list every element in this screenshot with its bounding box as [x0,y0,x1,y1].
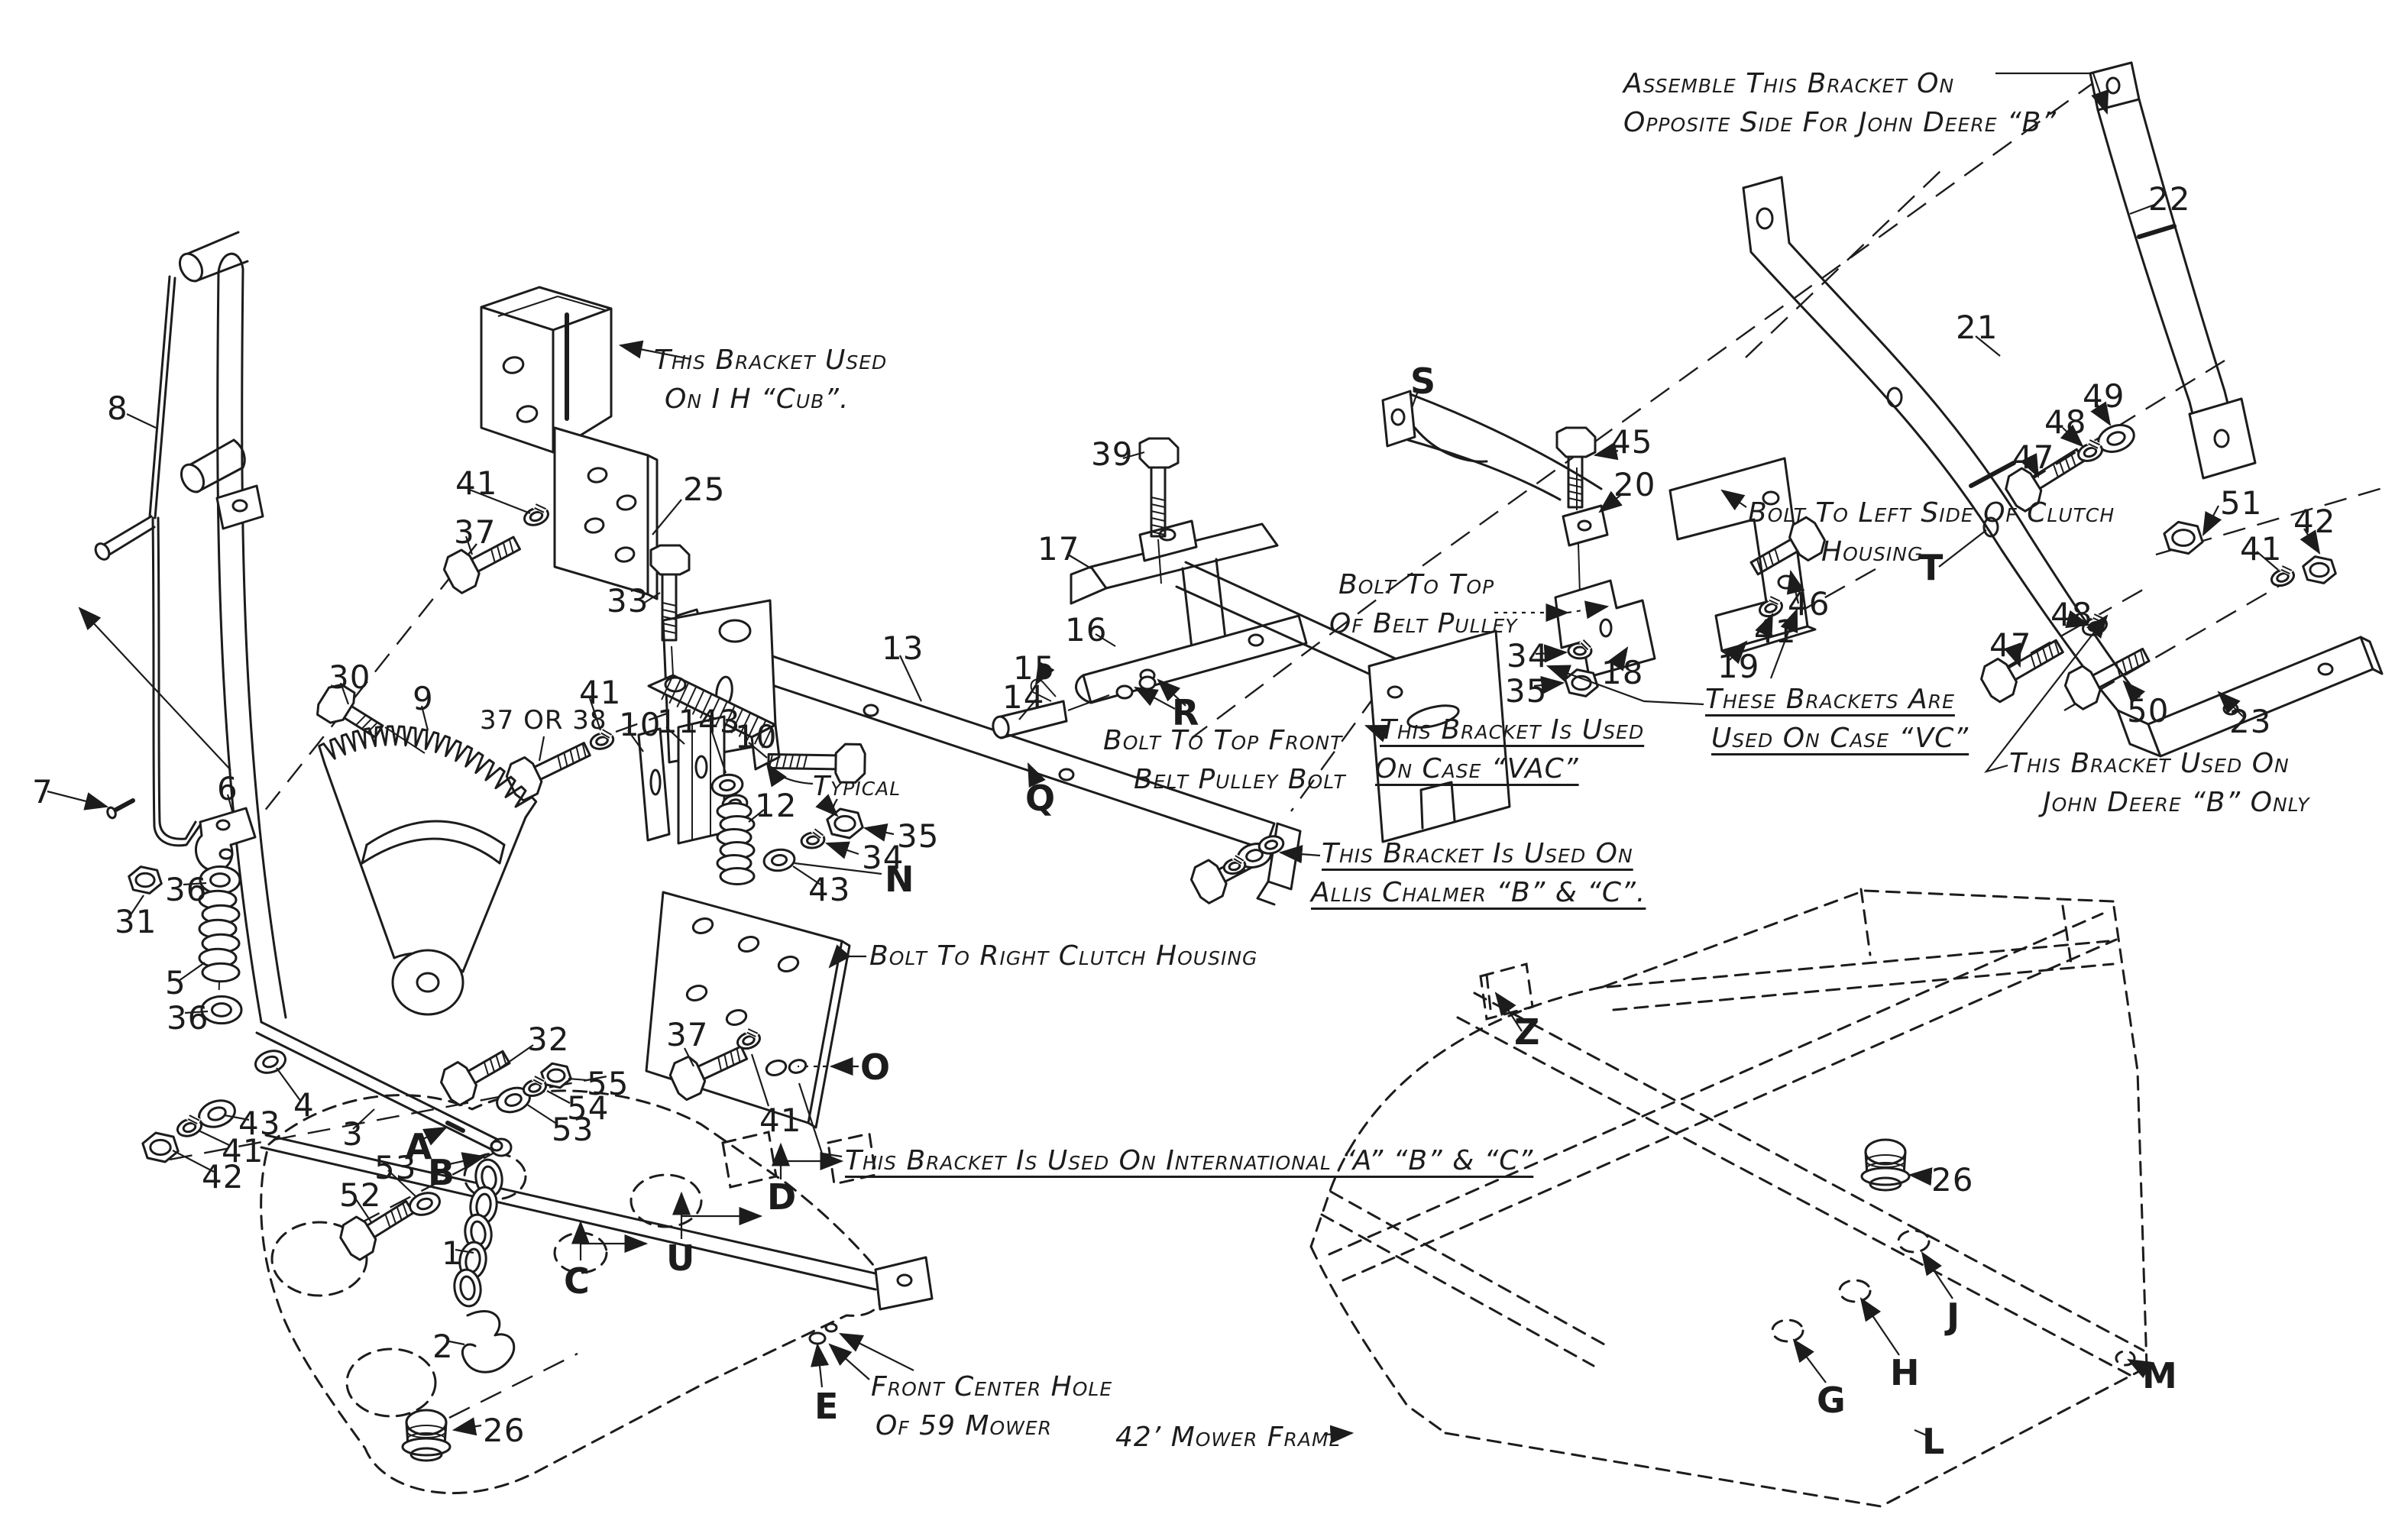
ref-letter-B: B [428,1155,455,1190]
part-label-32: 32 [527,1024,569,1056]
note-case-vc: These Brackets AreUsed On Case “VC” [1705,680,1969,758]
note-line: On I H “Cub”. [665,380,887,419]
part-label-36: 36 [167,1002,209,1034]
ref-letter-S: S [1410,364,1435,399]
note-line: Bolt To Right Clutch Housing [869,937,1257,975]
part-label-41: 41 [2240,533,2282,565]
note-bolt-left-clutch: Bolt To Left Side Of ClutchHousing [1748,493,2115,571]
ref-letter-J: J [1947,1299,1960,1334]
part-label-23: 23 [2229,706,2271,738]
diagram-sheet: 2221494847T51424148475023S45201918343546… [0,0,2408,1540]
part-label-25: 25 [683,474,725,506]
note-line: Belt Pulley Bolt [1134,760,1346,799]
part-label-48: 48 [2044,406,2086,438]
part-label-41: 41 [455,467,497,500]
note-international: This Bracket Is Used On International “A… [845,1141,1533,1180]
part-label-20: 20 [1613,469,1655,501]
note-bolt-top-front: Bolt To Top FrontBelt Pulley Bolt [1103,721,1346,799]
note-line: Typical [813,767,901,806]
note-line: This Bracket Used On [2009,744,2309,783]
part-label-31: 31 [115,906,157,938]
ref-letter-O: O [860,1050,890,1085]
ref-letter-Z: Z [1514,1014,1539,1050]
note-line: This Bracket Is Used On [1322,834,1646,873]
part-label-26: 26 [483,1415,525,1447]
part-label-3: 3 [342,1118,364,1150]
part-label-14: 14 [1002,681,1044,713]
note-allis-chalmer: This Bracket Is Used OnAllis Chalmer “B”… [1322,834,1646,912]
part-label-11: 11 [657,706,699,738]
note-john-deere-b-only: This Bracket Used OnJohn Deere “B” Only [2009,744,2309,822]
note-line: Bolt To Top [1338,565,1518,604]
note-ih-cub: This Bracket UsedOn I H “Cub”. [654,341,887,419]
note-line: Housing [1821,532,2115,571]
part-label-37: 37 [454,516,496,548]
part-label-19: 19 [1717,651,1759,683]
part-label-9: 9 [413,683,434,715]
part-label-18: 18 [1601,657,1643,689]
part-label-6: 6 [217,773,238,805]
note-front-center-hole: Front Center HoleOf 59 Mower [871,1367,1112,1445]
note-bolt-right-clutch: Bolt To Right Clutch Housing [869,937,1257,975]
part-label-4: 4 [293,1089,315,1121]
ref-letter-E: E [814,1389,838,1424]
note-line: 42’ Mower Frame [1115,1418,1342,1457]
part-label-37: 37 [666,1019,708,1051]
part-label-33: 33 [607,585,649,617]
part-label-41: 41 [1754,616,1796,648]
part-label-22: 22 [2148,183,2190,215]
part-label-26: 26 [1931,1164,1973,1196]
part-label-41: 41 [579,677,621,709]
part-label-48: 48 [2050,599,2092,631]
part-label-52: 52 [339,1179,381,1212]
note-typical: Typical [813,767,901,806]
note-case-vac: This Bracket Is UsedOn Case “VAC” [1380,710,1644,788]
part-label-10: 10 [619,709,661,741]
note-line: This Bracket Is Used On International “A… [845,1141,1533,1180]
ref-letter-H: H [1890,1355,1920,1390]
note-assemble-jd-b: Assemble This Bracket OnOpposite Side Fo… [1623,64,2057,142]
ref-letter-N: N [885,862,914,897]
ref-letter-C: C [564,1263,590,1299]
part-label-39: 39 [1091,438,1133,471]
part-label-49: 49 [2083,380,2125,412]
note-line: John Deere “B” Only [2043,783,2309,822]
note-line: Bolt To Left Side Of Clutch [1748,493,2115,532]
part-label-47: 47 [1989,629,2031,662]
note-line: Used On Case “VC” [1711,719,1969,758]
note-line: This Bracket Used [654,341,887,380]
part-label-50: 50 [2127,695,2169,727]
ref-letter-Q: Q [1025,781,1055,816]
part-label-21: 21 [1956,312,1998,344]
note-line: Of 59 Mower [875,1406,1112,1445]
note-line: Front Center Hole [871,1367,1112,1406]
part-label-5: 5 [165,967,186,999]
part-label-1: 1 [442,1237,463,1270]
ref-letter-D: D [767,1179,796,1215]
part-label-45: 45 [1610,426,1652,458]
note-line: Opposite Side For John Deere “B” [1623,103,2057,142]
note-line: Assemble This Bracket On [1623,64,2057,103]
part-label-13: 13 [882,632,924,665]
note-line: Bolt To Top Front [1103,721,1346,760]
part-label-36: 36 [165,874,207,906]
part-label-17: 17 [1037,533,1079,565]
part-label-7: 7 [32,776,53,808]
note-bolt-top-of-belt-pulley: Bolt To TopOf Belt Pulley [1338,565,1518,643]
part-label-16: 16 [1065,614,1107,646]
part-label-8: 8 [107,393,128,425]
ref-letter-U: U [666,1241,694,1276]
part-label-12: 12 [755,790,797,822]
part-label-51: 51 [2220,487,2262,519]
part-label-2: 2 [432,1331,454,1363]
part-label-53: 53 [552,1114,594,1146]
part-label-42: 42 [202,1161,244,1193]
note-line: Allis Chalmer “B” & “C”. [1311,873,1646,912]
note-mower-frame-42: 42’ Mower Frame [1115,1418,1342,1457]
ref-letter-M: M [2142,1358,2177,1393]
part-label-30: 30 [329,662,371,694]
part-label-42: 42 [2293,506,2335,538]
ref-letter-L: L [1922,1424,1944,1459]
note-line: Of Belt Pulley [1329,604,1518,643]
note-line: This Bracket Is Used [1380,710,1644,749]
part-label-35: 35 [1505,675,1547,707]
part-label-37-OR-38: 37 OR 38 [480,707,607,733]
note-line: On Case “VAC” [1375,749,1644,788]
part-label-10: 10 [735,721,777,753]
note-line: These Brackets Are [1705,680,1969,719]
part-label-43: 43 [808,874,850,906]
ref-letter-G: G [1817,1383,1846,1418]
part-label-34: 34 [1507,640,1549,672]
part-label-41: 41 [759,1105,801,1137]
part-label-47: 47 [2012,442,2054,474]
